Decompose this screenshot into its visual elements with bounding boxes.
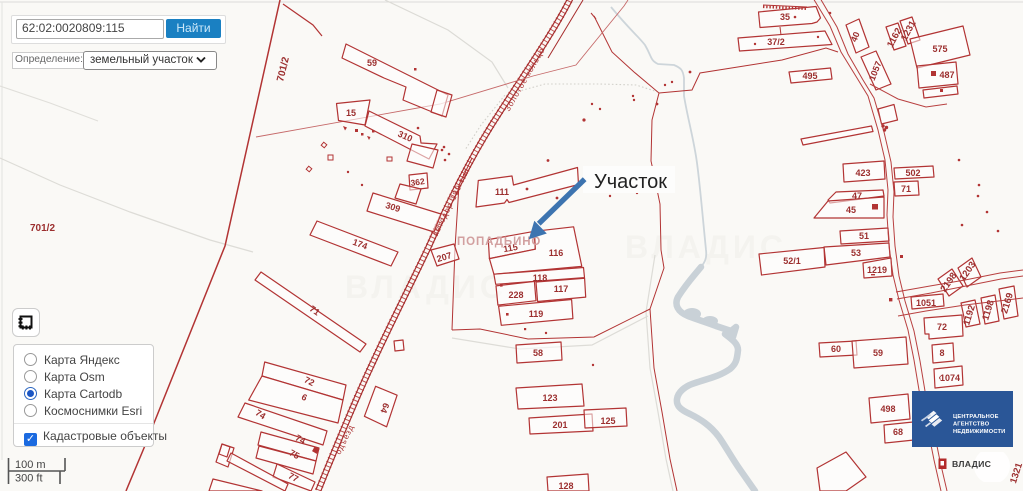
- svg-text:59: 59: [367, 58, 377, 68]
- svg-text:Участок: Участок: [594, 171, 667, 193]
- svg-text:362: 362: [410, 176, 426, 188]
- svg-text:8: 8: [939, 348, 944, 358]
- svg-text:ВЛАДИС: ВЛАДИС: [952, 459, 992, 469]
- svg-text:1219: 1219: [867, 265, 887, 275]
- svg-text:ЦЕНТРАЛЬНОЕ: ЦЕНТРАЛЬНОЕ: [953, 414, 999, 420]
- svg-text:72: 72: [937, 322, 947, 332]
- svg-text:35: 35: [780, 12, 790, 22]
- svg-text:59: 59: [873, 348, 883, 358]
- svg-text:15: 15: [346, 108, 356, 118]
- svg-text:495: 495: [802, 71, 817, 81]
- svg-text:575: 575: [932, 44, 947, 54]
- svg-text:498: 498: [880, 404, 895, 414]
- svg-text:47: 47: [852, 191, 862, 201]
- svg-text:201: 201: [552, 420, 567, 430]
- svg-text:45: 45: [846, 205, 856, 215]
- svg-text:АГЕНТСТВО: АГЕНТСТВО: [953, 422, 990, 428]
- svg-text:ВЛАДИС: ВЛАДИС: [345, 269, 507, 305]
- svg-text:487: 487: [939, 70, 954, 80]
- svg-text:502: 502: [905, 168, 920, 178]
- svg-text:1051: 1051: [916, 298, 936, 308]
- svg-text:68: 68: [893, 427, 903, 437]
- svg-text:128: 128: [558, 481, 573, 491]
- svg-text:58: 58: [533, 348, 543, 358]
- svg-text:125: 125: [600, 416, 615, 426]
- svg-text:НЕДВИЖИМОСТИ: НЕДВИЖИМОСТИ: [953, 429, 1005, 435]
- svg-text:53: 53: [851, 248, 861, 258]
- svg-text:119: 119: [529, 309, 544, 319]
- svg-text:ПОПАДЬИНО: ПОПАДЬИНО: [457, 236, 541, 248]
- svg-text:701/2: 701/2: [30, 223, 55, 234]
- svg-text:300 ft: 300 ft: [15, 473, 43, 485]
- svg-text:‹: ‹: [939, 373, 942, 382]
- svg-text:37/2: 37/2: [767, 37, 785, 47]
- svg-text:71: 71: [901, 184, 911, 194]
- svg-text:123: 123: [542, 393, 557, 403]
- svg-text:60: 60: [831, 344, 841, 354]
- svg-text:116: 116: [549, 248, 564, 258]
- svg-text:1074: 1074: [940, 373, 960, 383]
- svg-text:118: 118: [533, 273, 548, 283]
- svg-text:423: 423: [855, 168, 870, 178]
- svg-text:111: 111: [495, 187, 509, 197]
- svg-text:117: 117: [554, 284, 569, 294]
- svg-text:52/1: 52/1: [783, 256, 801, 266]
- svg-text:100 m: 100 m: [15, 459, 46, 471]
- svg-text:51: 51: [859, 231, 869, 241]
- svg-text:228: 228: [508, 290, 523, 300]
